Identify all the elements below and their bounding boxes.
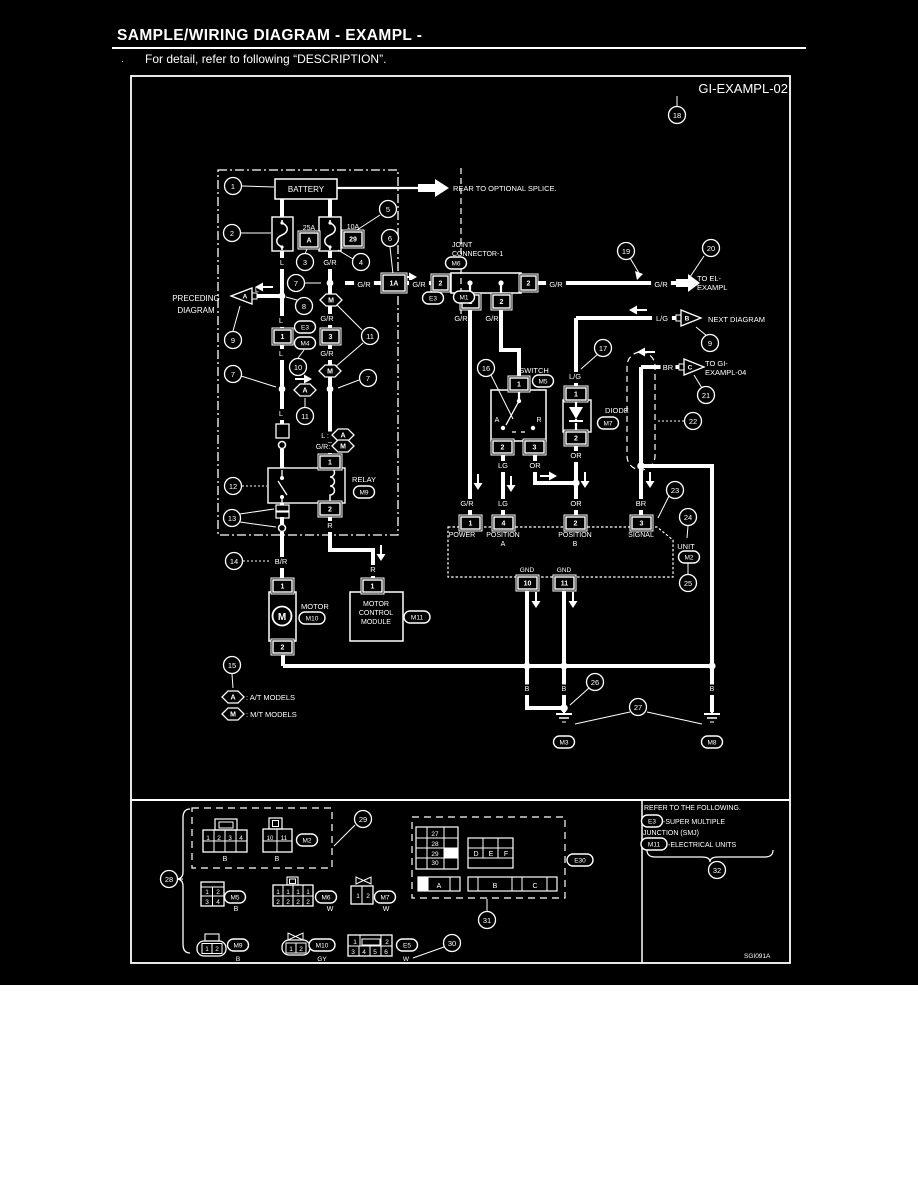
pin-number: 1 bbox=[371, 584, 375, 591]
connector-code: E5 bbox=[403, 942, 411, 949]
diagram-label: TO GI- bbox=[705, 359, 728, 368]
diagram-label: B bbox=[234, 906, 239, 913]
diagram-label: W bbox=[403, 956, 410, 963]
callout-number: 16 bbox=[482, 364, 490, 373]
diagram-label: 1 bbox=[356, 893, 360, 900]
diagram-label: L bbox=[279, 409, 283, 418]
callout-number: 31 bbox=[483, 916, 491, 925]
diagram-label: 2 bbox=[286, 899, 290, 906]
model-letter: A bbox=[340, 433, 345, 440]
connector-code: M2 bbox=[302, 837, 311, 844]
triangle-tail bbox=[676, 315, 681, 321]
callout-number: 28 bbox=[165, 875, 173, 884]
pin-number: 1 bbox=[328, 460, 332, 467]
diagram-label: 1 bbox=[205, 946, 209, 953]
connector-code: M6 bbox=[451, 260, 460, 267]
diagram-label: E bbox=[489, 851, 494, 858]
diagram-label: 2 bbox=[216, 889, 220, 896]
diagram-label: G/R bbox=[549, 280, 563, 289]
diagram-label: D bbox=[473, 851, 478, 858]
triangle-letter: A bbox=[243, 294, 248, 301]
pin-number: 3 bbox=[533, 445, 537, 452]
connector-code: M7 bbox=[603, 420, 612, 427]
diagram-label: G/R: bbox=[316, 444, 330, 451]
diagram-label: 4 bbox=[216, 899, 220, 906]
connector-code: M3 bbox=[559, 739, 568, 746]
pin-number: 2 bbox=[574, 521, 578, 528]
diagram-label: GI-EXAMPL-02 bbox=[698, 81, 788, 96]
diagram-label: 1 bbox=[289, 946, 293, 953]
model-letter: A bbox=[230, 695, 235, 702]
callout-number: 20 bbox=[707, 244, 715, 253]
callout-number: 19 bbox=[622, 247, 630, 256]
callout-number: 13 bbox=[228, 514, 236, 523]
diagram-label: 1 bbox=[353, 939, 357, 946]
diagram-label: : M/T MODELS bbox=[246, 710, 297, 719]
connector-code: E3 bbox=[301, 324, 309, 331]
callout-number: 9 bbox=[708, 339, 712, 348]
diagram-label: 2 bbox=[215, 946, 219, 953]
connector-code: M5 bbox=[538, 378, 547, 385]
connector-code: M10 bbox=[316, 942, 329, 949]
callout-number: 15 bbox=[228, 661, 236, 670]
diagram-label: POWER bbox=[449, 532, 475, 539]
diagram-label: L : bbox=[321, 433, 329, 440]
callout-number: 9 bbox=[231, 336, 235, 345]
diagram-label: 6 bbox=[384, 949, 388, 956]
diagram-label: W bbox=[383, 906, 390, 913]
triangle-letter: B bbox=[685, 316, 690, 323]
diagram-label: 28 bbox=[431, 841, 439, 848]
diagram-label: 4 bbox=[362, 949, 366, 956]
diagram-label: B bbox=[573, 541, 578, 548]
callout-number: 5 bbox=[386, 205, 390, 214]
diagram-label: B bbox=[525, 686, 530, 693]
model-letter: M bbox=[230, 712, 236, 719]
pin-number: 4 bbox=[502, 521, 506, 528]
callout-number: 25 bbox=[684, 579, 692, 588]
diagram-label: JUNCTION (SMJ) bbox=[643, 830, 699, 837]
connector-code: M8 bbox=[707, 739, 716, 746]
diagram-label: L bbox=[279, 349, 283, 358]
diagram-label: NEXT DIAGRAM bbox=[708, 315, 765, 324]
diagram-label: G/R bbox=[320, 314, 334, 323]
diagram-label: PRECEDING bbox=[172, 294, 220, 303]
diagram-label: 1 bbox=[286, 889, 290, 896]
diagram-label: B bbox=[493, 883, 498, 890]
callout-number: 29 bbox=[359, 815, 367, 824]
connector-code: E3 bbox=[429, 295, 437, 302]
diagram-label: G/R bbox=[323, 258, 337, 267]
model-letter: M bbox=[340, 444, 346, 451]
connector-code: M5 bbox=[230, 894, 239, 901]
diagram-label: MODULE bbox=[361, 619, 391, 626]
diagram-label: 3 bbox=[228, 835, 232, 842]
svg-text:M: M bbox=[278, 612, 286, 623]
callout-number: 4 bbox=[359, 258, 363, 267]
page-subtitle: For detail, refer to following “DESCRIPT… bbox=[145, 52, 386, 66]
page-title: SAMPLE/WIRING DIAGRAM - EXAMPL - bbox=[117, 27, 422, 45]
diagram-label: L/G bbox=[569, 372, 581, 381]
model-letter: M bbox=[328, 298, 334, 305]
title-underline bbox=[112, 47, 806, 49]
diagram-label: 2 bbox=[366, 893, 370, 900]
pin-number: 3 bbox=[329, 334, 333, 341]
diagram-label: SWITCH bbox=[519, 366, 549, 375]
pin-number: 10 bbox=[524, 581, 532, 588]
diagram-label: -ELECTRICAL UNITS bbox=[668, 842, 737, 849]
callout-number: 1 bbox=[231, 182, 235, 191]
diagram-label: GY bbox=[317, 956, 327, 963]
diagram-label: L bbox=[279, 316, 283, 325]
diagram-label: LG bbox=[498, 499, 508, 508]
pin-number: 2 bbox=[501, 445, 505, 452]
connector-code: M7 bbox=[380, 894, 389, 901]
pin-number: 3 bbox=[640, 521, 644, 528]
diagram-label: POSITION bbox=[558, 532, 591, 539]
diagram-label: GND bbox=[520, 567, 535, 574]
diagram-label: 5 bbox=[373, 949, 377, 956]
diagram-label: R bbox=[327, 521, 333, 530]
callout-number: 11 bbox=[301, 412, 309, 421]
page-background bbox=[0, 0, 918, 985]
pin-number: 29 bbox=[349, 237, 357, 244]
diagram-label: G/R bbox=[320, 349, 334, 358]
diagram-label: MOTOR bbox=[363, 601, 389, 608]
diagram-label: 1 bbox=[296, 889, 300, 896]
diagram-label: DIAGRAM bbox=[177, 306, 215, 315]
triangle-letter: C bbox=[688, 365, 693, 372]
triangle-tail bbox=[252, 293, 257, 299]
diagram-label: DIODE bbox=[605, 406, 629, 415]
diagram-label: 30 bbox=[431, 860, 439, 867]
callout-number: 26 bbox=[591, 678, 599, 687]
connector-code: M10 bbox=[306, 615, 319, 622]
callout-number: 23 bbox=[671, 486, 679, 495]
callout-number: 12 bbox=[229, 482, 237, 491]
diagram-label: 2 bbox=[296, 899, 300, 906]
diagram-label: 27 bbox=[431, 831, 439, 838]
diagram-label: 10 bbox=[267, 836, 274, 842]
diagram-label: G/R bbox=[654, 280, 668, 289]
connector-code: M11 bbox=[648, 841, 661, 848]
diagram-label: 1 bbox=[276, 889, 280, 896]
diagram-label: G/R bbox=[357, 280, 371, 289]
diagram-label: G/R bbox=[412, 280, 426, 289]
diagram-label: B/R bbox=[275, 557, 288, 566]
diagram-label: 4 bbox=[239, 835, 243, 842]
connector-code: M1 bbox=[459, 294, 468, 301]
callout-number: 24 bbox=[684, 513, 692, 522]
diagram-label: BR bbox=[636, 499, 647, 508]
connector-code: E3 bbox=[648, 818, 656, 825]
diagram-label: GND bbox=[557, 567, 572, 574]
callout-number: 10 bbox=[294, 363, 302, 372]
diagram-label: OR bbox=[570, 499, 582, 508]
diagram-label: 2 bbox=[306, 899, 310, 906]
diagram-label: 1 bbox=[206, 835, 210, 842]
diagram-label: LG bbox=[498, 461, 508, 470]
diagram-label: REAR TO OPTIONAL SPLICE. bbox=[453, 184, 557, 193]
diagram-label: : A/T MODELS bbox=[246, 693, 295, 702]
diagram-label: 29 bbox=[431, 851, 439, 858]
pin-number: 1 bbox=[574, 392, 578, 399]
pin-number: 1 bbox=[281, 584, 285, 591]
diagram-label: W bbox=[327, 906, 334, 913]
diagram-label: OR bbox=[529, 461, 541, 470]
diagram-label: 1 bbox=[306, 889, 310, 896]
bullet-marker: · bbox=[121, 56, 124, 66]
connector-code: M11 bbox=[411, 614, 424, 621]
diagram-label: 2 bbox=[217, 835, 221, 842]
pin-number: 2 bbox=[527, 281, 531, 288]
diagram-label: 3 bbox=[351, 949, 355, 956]
callout-number: 18 bbox=[673, 111, 681, 120]
diagram-label: POSITION bbox=[486, 532, 519, 539]
diagram-label: L bbox=[280, 258, 284, 267]
callout-number: 17 bbox=[599, 344, 607, 353]
diagram-label: 2 bbox=[276, 899, 280, 906]
diagram-label: BATTERY bbox=[288, 185, 325, 194]
diagram-label: B bbox=[710, 686, 715, 693]
diagram-label: TO EL- bbox=[697, 274, 722, 283]
diagram-label: A bbox=[495, 417, 500, 424]
diagram-label: RELAY bbox=[352, 475, 376, 484]
diagram-label: L/G bbox=[656, 314, 668, 323]
diagram-label: G/R bbox=[460, 499, 474, 508]
callout-number: 14 bbox=[230, 557, 238, 566]
callout-number: 7 bbox=[294, 279, 298, 288]
callout-number: 30 bbox=[448, 939, 456, 948]
callout-number: 32 bbox=[713, 866, 721, 875]
diagram-label: 3 bbox=[205, 899, 209, 906]
diagram-label: 11 bbox=[281, 836, 288, 842]
diagram-label: G/R bbox=[454, 314, 468, 323]
diagram-label: R bbox=[370, 565, 376, 574]
pin-number: 1 bbox=[517, 382, 521, 389]
callout-number: 7 bbox=[366, 374, 370, 383]
callout-number: 11 bbox=[366, 332, 374, 341]
wiring-diagram-canvas: M bbox=[0, 0, 918, 1188]
pin-number: 11 bbox=[561, 581, 569, 588]
diagram-label: 2 bbox=[385, 939, 389, 946]
pin-number: 2 bbox=[281, 645, 285, 652]
diagram-label: -SUPER MULTIPLE bbox=[663, 819, 725, 826]
diagram-label: SGI091A bbox=[744, 953, 771, 960]
diagram-label: REFER TO THE FOLLOWING. bbox=[644, 805, 741, 812]
diagram-label: A bbox=[437, 883, 442, 890]
diagram-label: JOINT bbox=[452, 242, 473, 249]
diagram-label: A bbox=[501, 541, 506, 548]
model-letter: M bbox=[327, 369, 333, 376]
callout-number: 6 bbox=[388, 234, 392, 243]
callout-number: 2 bbox=[230, 229, 234, 238]
pin-number: 1A bbox=[390, 281, 399, 288]
pin-number: 2 bbox=[574, 436, 578, 443]
connector-code: M4 bbox=[300, 340, 309, 347]
diagram-label: B bbox=[223, 856, 228, 863]
triangle-tail bbox=[679, 364, 684, 370]
connector-code: M9 bbox=[359, 489, 368, 496]
diagram-label: EXAMPL bbox=[697, 283, 727, 292]
pin-number: 2 bbox=[328, 507, 332, 514]
diagram-label: C bbox=[532, 883, 537, 890]
diagram-label: EXAMPL-04 bbox=[705, 368, 746, 377]
pin-number: 1 bbox=[469, 521, 473, 528]
pin-number: A bbox=[306, 238, 311, 245]
diagram-label: OR bbox=[570, 451, 582, 460]
diagram-label: BR bbox=[663, 363, 674, 372]
diagram-label: CONTROL bbox=[359, 610, 393, 617]
diagram-label: B bbox=[236, 956, 240, 963]
diagram-label: R bbox=[536, 417, 541, 424]
diagram-label: B bbox=[562, 686, 567, 693]
connector-code: M6 bbox=[321, 894, 330, 901]
callout-number: 22 bbox=[689, 417, 697, 426]
pin-number: 2 bbox=[500, 299, 504, 306]
connector-code: M9 bbox=[233, 942, 242, 949]
diagram-label: B bbox=[275, 856, 280, 863]
diagram-label: F bbox=[504, 851, 508, 858]
diagram-label: UNIT bbox=[677, 542, 695, 551]
callout-number: 3 bbox=[303, 258, 307, 267]
diagram-label: 1 bbox=[205, 889, 209, 896]
connector-code: E30 bbox=[574, 857, 586, 864]
diagram-label: 2 bbox=[299, 946, 303, 953]
callout-number: 8 bbox=[302, 302, 306, 311]
callout-number: 21 bbox=[702, 391, 710, 400]
wiring-diagram-page: M bbox=[0, 0, 918, 1188]
connector-code: M2 bbox=[684, 554, 693, 561]
diagram-label: G/R bbox=[485, 314, 499, 323]
pin-number: 1 bbox=[281, 334, 285, 341]
diagram-label: SIGNAL bbox=[628, 532, 654, 539]
callout-number: 27 bbox=[634, 703, 642, 712]
pin-number: 2 bbox=[439, 281, 443, 288]
diagram-label: MOTOR bbox=[301, 602, 329, 611]
model-letter: A bbox=[302, 388, 307, 395]
callout-number: 7 bbox=[231, 370, 235, 379]
